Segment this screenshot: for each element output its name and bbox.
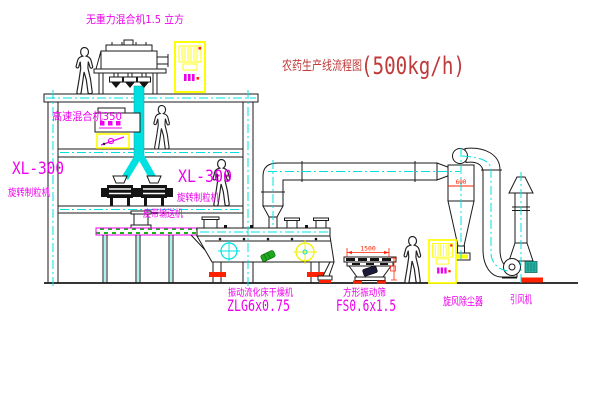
granulator-left [101,176,139,206]
label-xl300-left: XL-300 [12,159,64,179]
label-belt-conveyor: 皮带输送机 [143,207,183,220]
label-fan: 引风机 [510,292,532,306]
person-ground [404,236,421,282]
mixer-discharge-valves [110,73,151,88]
induced-draft-fan [502,259,543,283]
fluid-bed-dryer [197,217,334,283]
cyclone-separator [448,148,517,277]
vibrating-screen [344,257,397,284]
control-cabinet-2 [429,240,456,283]
belt-conveyor [96,228,209,283]
granulator-right [135,176,173,206]
label-xl300-center: XL-300 [178,167,232,187]
page-title-capacity: (500kg/h) [361,52,465,80]
label-cyclone: 旋风除尘器 [443,294,483,308]
diagram-canvas: 无重力混合机1.5 立方 高速混合机350 农药生产线流程图 (500kg/h)… [0,0,600,403]
label-granulator-center: 旋转制粒机 [177,191,219,204]
label-screen-model: FS0.6x1.5 [336,296,396,315]
control-cabinet-1 [175,42,205,92]
label-high-speed-mixer: 高速混合机350 [52,109,122,123]
label-gravity-mixer: 无重力混合机1.5 立方 [86,12,184,26]
label-granulator-left: 旋转制粒机 [8,186,50,199]
flowchart-page: 无重力混合机1.5 立方 高速混合机350 农药生产线流程图 (500kg/h)… [0,0,600,403]
dim-text-1500: 1500 [360,245,376,253]
gravity-mixer [94,40,168,94]
person-second-floor [154,105,170,149]
page-title-cn: 农药生产线流程图 [282,59,362,74]
person-top-floor [76,47,93,93]
label-dryer-model: ZLG6x0.75 [227,296,290,315]
dim-text-600: 600 [456,179,467,186]
